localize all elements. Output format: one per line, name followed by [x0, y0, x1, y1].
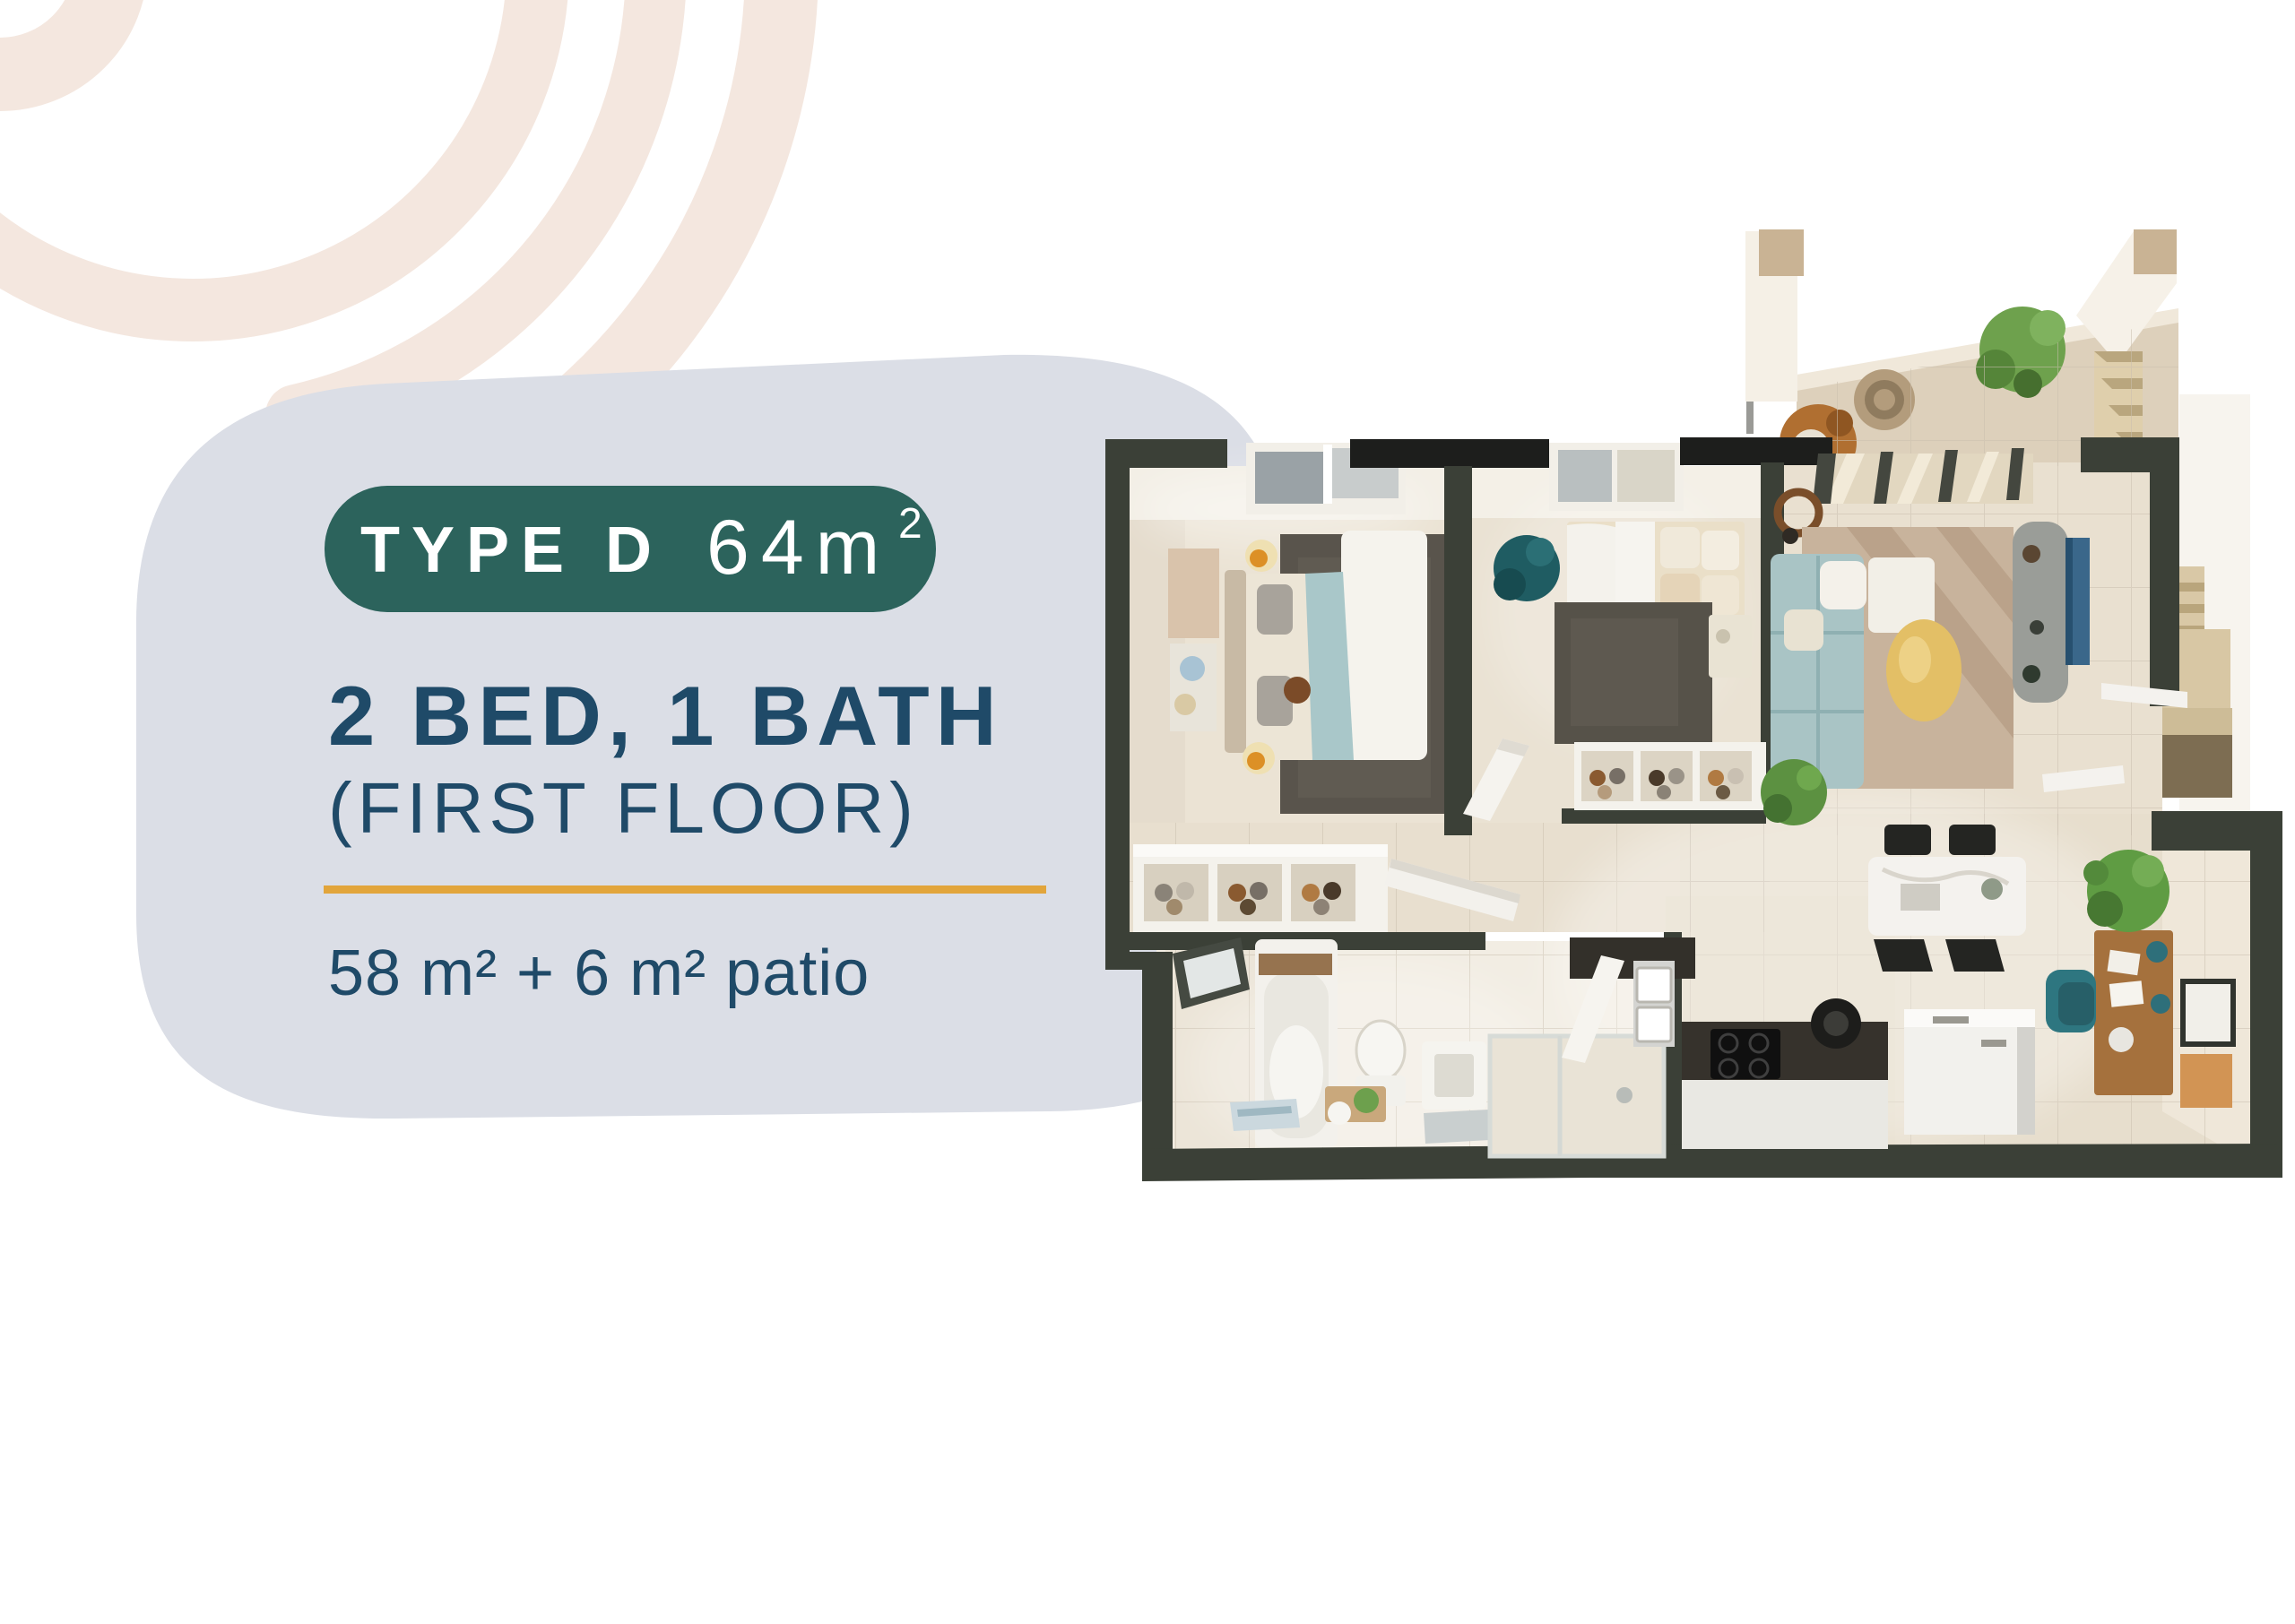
svg-text:2 BED, 1 BATH: 2 BED, 1 BATH	[328, 669, 1003, 763]
svg-text:64m: 64m	[706, 505, 891, 591]
svg-text:58 m² + 6 m² patio: 58 m² + 6 m² patio	[328, 937, 870, 1009]
svg-text:2: 2	[898, 500, 922, 548]
svg-text:(FIRST FLOOR): (FIRST FLOOR)	[328, 768, 919, 848]
svg-text:TYPE D: TYPE D	[360, 514, 663, 586]
